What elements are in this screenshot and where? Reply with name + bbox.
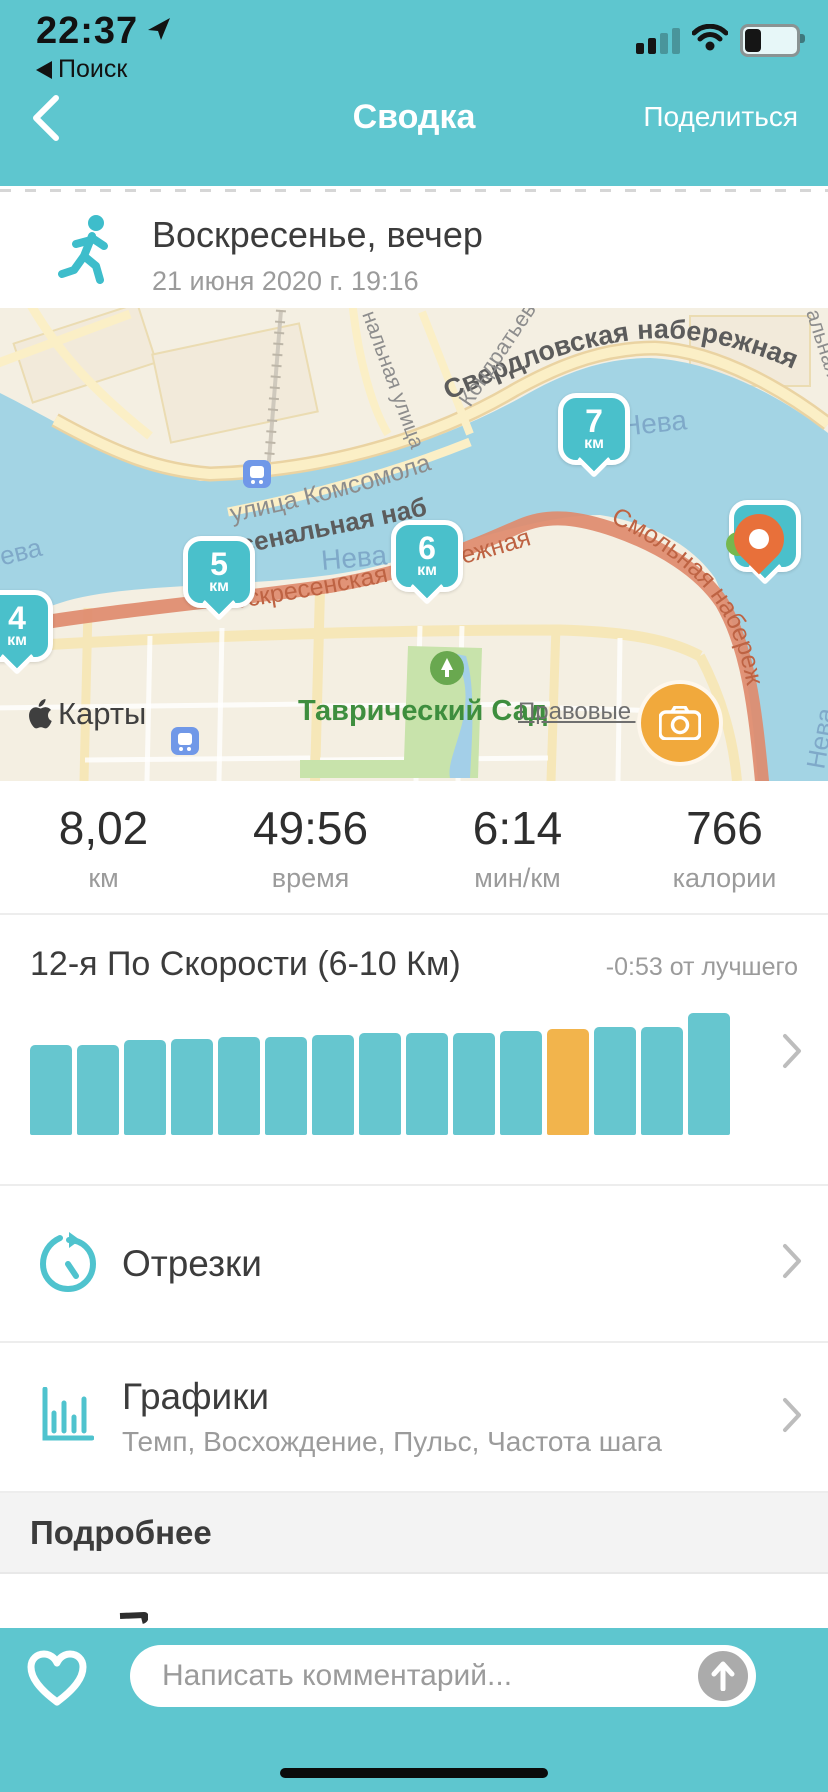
- stat-duration: 49:56время: [207, 801, 414, 894]
- nav-bar: Сводка Поделиться: [0, 86, 828, 148]
- splits-timer-icon: [40, 1230, 98, 1297]
- bar-run: [641, 1027, 683, 1135]
- bar-run: [406, 1033, 448, 1135]
- status-bar: 22:37 Поиск: [0, 0, 828, 84]
- bar-run: [312, 1035, 354, 1135]
- share-button[interactable]: Поделиться: [643, 101, 798, 133]
- pr-bar-chart: [30, 915, 730, 1135]
- splits-label: Отрезки: [122, 1243, 262, 1285]
- comment-input[interactable]: [160, 1658, 698, 1694]
- location-arrow-icon: [146, 16, 172, 47]
- camera-icon: [659, 706, 701, 740]
- route-map[interactable]: Свердловская набережная Арсенальная набе…: [0, 308, 828, 781]
- bar-run: [171, 1039, 213, 1135]
- bar-current-run: [547, 1029, 589, 1135]
- bar-run: [218, 1037, 260, 1135]
- bar-run: [594, 1027, 636, 1135]
- km-marker-6: 6км: [391, 520, 463, 592]
- bar-run: [77, 1045, 119, 1135]
- apple-logo-icon: [26, 699, 52, 730]
- metro-icon: [171, 727, 199, 755]
- metro-icon: [243, 460, 271, 488]
- app-screen: 22:37 Поиск: [0, 0, 828, 1792]
- header: 22:37 Поиск: [0, 0, 828, 186]
- stat-pace: 6:14мин/км: [414, 801, 621, 894]
- send-comment-button[interactable]: [698, 1651, 748, 1701]
- bar-run: [500, 1031, 542, 1135]
- activity-title: Воскресенье, вечер: [152, 214, 483, 256]
- comment-bar: [0, 1628, 828, 1792]
- charts-row[interactable]: Графики Темп, Восхождение, Пульс, Частот…: [0, 1343, 828, 1493]
- battery-icon: [740, 24, 800, 57]
- back-to-app[interactable]: Поиск: [36, 55, 172, 84]
- back-button[interactable]: [30, 94, 70, 140]
- stats-row: 8,02км 49:56время 6:14мин/км 766калории: [0, 781, 828, 915]
- runner-icon: [58, 214, 116, 293]
- km-marker-7: 7км: [558, 393, 630, 465]
- charts-label: Графики: [122, 1376, 662, 1418]
- park-label: Таврический Сад: [298, 695, 547, 727]
- back-triangle-icon: [36, 61, 52, 79]
- km-marker-5: 5км: [183, 536, 255, 608]
- activity-datetime: 21 июня 2020 г. 19:16: [152, 266, 483, 297]
- personal-record-section[interactable]: 12-я По Скорости (6-10 Км) -0:53 от лучш…: [0, 915, 828, 1186]
- bar-run: [688, 1013, 730, 1135]
- camera-button[interactable]: [637, 680, 723, 766]
- bar-run: [265, 1037, 307, 1135]
- status-time: 22:37: [36, 10, 138, 53]
- like-heart-button[interactable]: [26, 1650, 88, 1713]
- more-section-header: Подробнее: [0, 1493, 828, 1574]
- up-arrow-icon: [710, 1661, 736, 1691]
- charts-sublabel: Темп, Восхождение, Пульс, Частота шага: [122, 1426, 662, 1458]
- chevron-right-icon: [782, 1397, 802, 1438]
- status-left: 22:37 Поиск: [36, 10, 172, 84]
- status-icons: [636, 24, 800, 57]
- activity-header: Воскресенье, вечер 21 июня 2020 г. 19:16: [0, 186, 828, 308]
- cellular-signal-icon: [636, 28, 680, 54]
- comment-input-pill: [130, 1645, 756, 1707]
- water-label: Нева: [320, 539, 389, 576]
- bar-chart-icon: [40, 1387, 98, 1448]
- bar-run: [124, 1040, 166, 1135]
- bar-run: [453, 1033, 495, 1135]
- wifi-icon: [692, 24, 728, 57]
- map-attribution: Карты: [26, 696, 146, 732]
- chevron-right-icon: [782, 1243, 802, 1284]
- chevron-right-icon: [782, 1033, 802, 1074]
- splits-row[interactable]: Отрезки: [0, 1186, 828, 1343]
- clipped-content: [118, 1612, 148, 1626]
- stat-distance: 8,02км: [0, 801, 207, 894]
- home-indicator[interactable]: [280, 1768, 548, 1778]
- stat-calories: 766калории: [621, 801, 828, 894]
- bar-run: [359, 1033, 401, 1135]
- km-marker-4: 4км: [0, 590, 53, 662]
- bar-run: [30, 1045, 72, 1135]
